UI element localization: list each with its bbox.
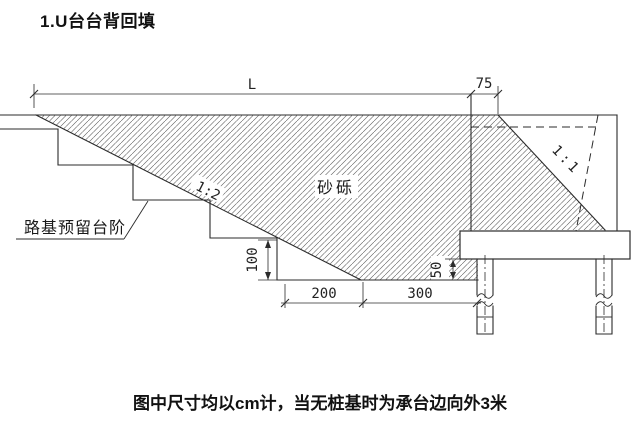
drawing-caption: 图中尺寸均以cm计，当无桩基时为承台边向外3米: [0, 389, 640, 414]
pile-left: [477, 255, 493, 334]
dim-200-text: 200: [311, 286, 336, 302]
dim-75-text: 75: [476, 76, 493, 92]
dimension-L: L 75: [30, 76, 502, 114]
dimension-100: 100: [245, 240, 277, 280]
dim-50-text: 50: [429, 262, 445, 279]
dim-300-text: 300: [407, 286, 432, 302]
pile-cap: [460, 231, 630, 259]
fill-material-label: 砂砾: [317, 179, 355, 197]
dimension-200-300: 200 300: [281, 282, 481, 308]
slope-1-1-label: 1:1: [548, 142, 583, 178]
dim-L-text: L: [248, 77, 256, 93]
steps-note-text: 路基预留台阶: [24, 219, 126, 237]
steps-note: 路基预留台阶: [16, 201, 148, 239]
pile-right: [596, 255, 612, 334]
dim-100-text: 100: [245, 247, 261, 272]
steps-note-leader-line: [124, 201, 148, 239]
backfill-section-diagram: L 75 100 50 200 300 1:2 1:1 砂砾 路基预留台阶: [0, 0, 640, 424]
